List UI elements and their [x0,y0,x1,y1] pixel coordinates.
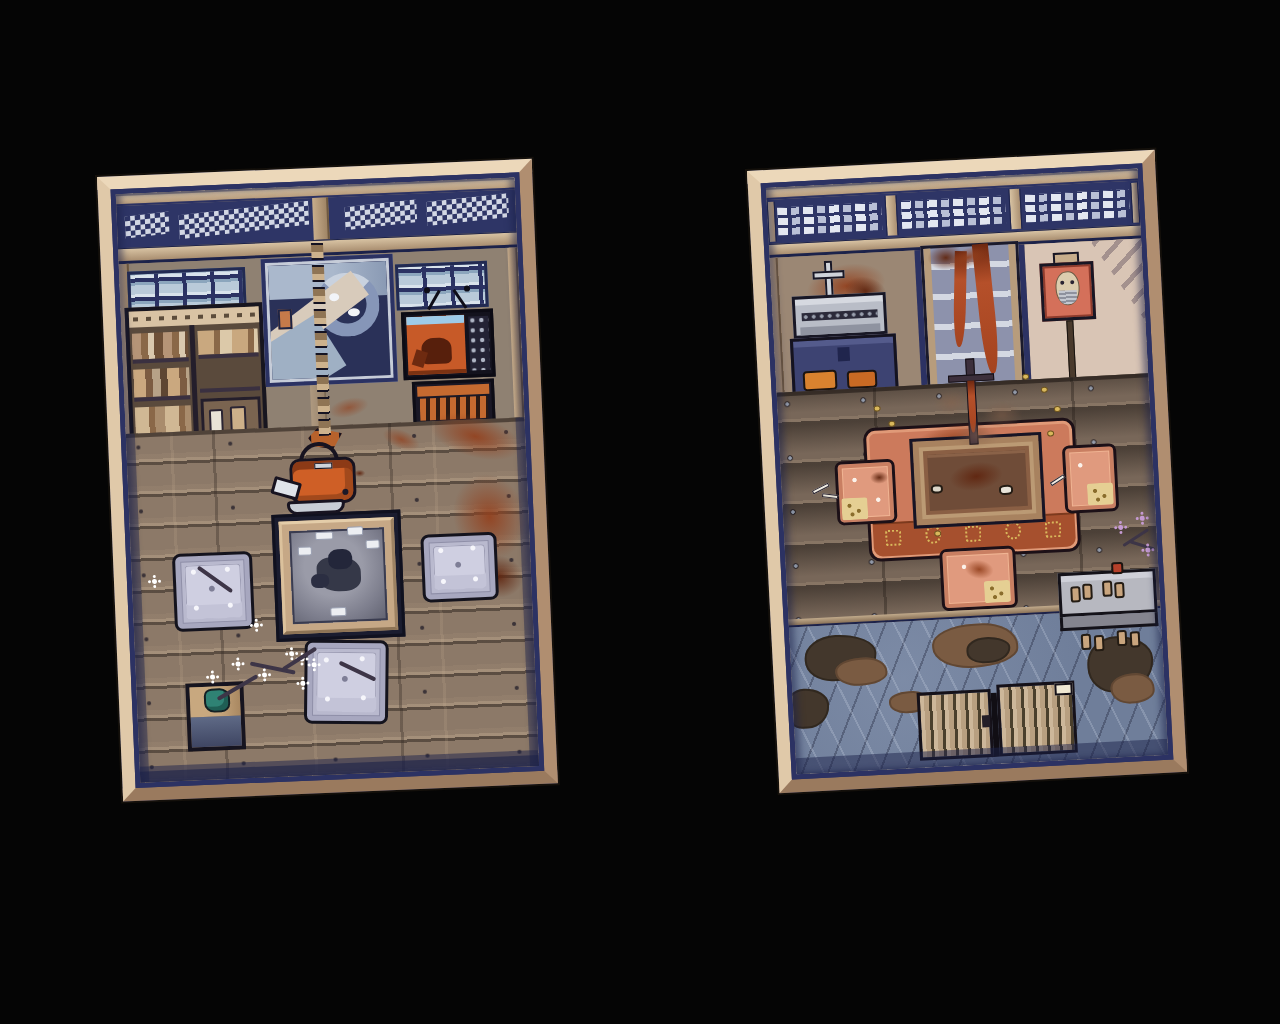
lattice-checker [125,211,170,238]
cross-arm [812,270,844,280]
white-blossom [300,681,305,686]
tv-screen [406,315,466,375]
purple-blossom [1140,516,1145,521]
tv-figure [421,337,452,364]
wall-post [770,258,785,393]
painting-boat [278,309,293,330]
cushion-patch [984,580,1011,603]
branch-stem [217,674,259,701]
mask-face [1055,271,1081,306]
floor-shadow [140,755,539,783]
bowl [931,484,943,494]
books-row [198,328,259,358]
purple-blossom-branch [1114,513,1158,563]
mask-eye [1070,280,1074,284]
mask-beard [1059,290,1078,305]
wood-floor [126,417,539,782]
charcoal [311,574,330,589]
lattice-checker [179,201,310,240]
rug-motif [1045,521,1062,538]
left-room-trim [111,172,545,788]
stage [0,0,1280,1024]
lattice-checker [426,193,509,226]
hearth-stone [315,531,333,540]
hearth-stone [298,546,312,556]
mud-stain [835,656,888,687]
framed-mask[interactable] [1039,251,1106,384]
painting-art [268,261,391,380]
rug-motif [1005,521,1022,540]
tv-controls [468,316,490,371]
wave-painting[interactable] [261,254,398,387]
mask-eye [1060,281,1064,285]
branch-stem [1129,540,1155,550]
transom-slat [1008,189,1022,230]
television[interactable] [401,309,496,381]
irori-ash [289,527,388,624]
transom-slat [884,195,898,236]
floor-cushion-left[interactable] [172,551,255,632]
cushion-patch [841,497,868,520]
kettle-base [287,499,346,515]
rug-motif [965,525,982,542]
irori-hearth[interactable] [271,510,405,642]
hearth-stone [365,539,379,549]
white-blossom [152,579,157,584]
transom-post [312,197,330,240]
gold-coin [1041,387,1048,393]
white-blossom [210,674,215,679]
bookshelf[interactable] [125,302,269,446]
lattice-checker [344,199,417,230]
gold-coin [873,405,880,411]
cushion-patch [1087,482,1114,505]
mask-frame [1039,261,1096,322]
typewriter[interactable] [792,292,888,339]
cushion-pattern [175,554,252,629]
sandal[interactable] [1082,584,1093,601]
kettle-lid [314,462,332,469]
white-blossom [262,672,267,677]
smoke [954,421,999,449]
sandal[interactable] [1114,582,1125,599]
charcoal [328,549,353,570]
sandal[interactable] [1102,580,1113,597]
floor-cushion-bottom[interactable] [939,545,1018,611]
books-row [199,362,260,392]
right-room-panel [747,150,1187,793]
lattice-glass [901,196,1006,229]
hanging-kettle[interactable] [276,424,376,524]
irori-wood-rim [279,517,399,635]
hearth-stone [347,526,363,536]
purple-blossom [1118,525,1123,530]
sandal[interactable] [1081,634,1092,651]
lattice-glass [1025,189,1130,222]
lattice-glass [777,202,882,235]
desk-contents [847,369,878,389]
floor-cushion-right[interactable] [1062,443,1119,514]
cushion-pattern [423,535,496,600]
floor-cushion-right[interactable] [420,532,499,603]
floor-cushion-left[interactable] [834,459,897,526]
typewriter-keys [802,309,878,321]
sandal[interactable] [1130,631,1141,648]
chopstick [822,493,838,499]
mud-stain [784,687,830,729]
hanging-pole [925,356,1031,471]
floor-shadow [126,434,150,783]
bookshelf-carvings [133,313,255,322]
sandal[interactable] [1117,630,1128,647]
typewriter-carriage [800,323,880,335]
white-blossom [289,651,294,656]
sandal[interactable] [1070,586,1081,603]
bowl [999,485,1014,496]
mask-pole [1066,320,1076,382]
blossom-branch [205,636,328,721]
chopstick [812,483,830,495]
sandal[interactable] [1094,635,1105,652]
desk-drawer [837,347,850,362]
white-blossom [312,662,317,667]
rug-motif [885,529,902,546]
transom-slat [767,202,777,242]
door-handle [982,715,991,727]
right-room-trim [761,163,1174,779]
wall-post [507,247,524,417]
books-row [133,367,190,401]
door-highlight [1054,683,1073,696]
tv-figure [412,349,428,368]
left-room [116,178,539,783]
entrance-door[interactable] [916,681,1078,763]
mud-stain [1110,672,1156,704]
wood-floor [777,373,1161,627]
shoe-step[interactable] [1057,568,1161,657]
transom-slat [1130,183,1140,223]
books-row [132,331,189,363]
right-room [766,169,1168,775]
purple-blossom [1145,547,1150,552]
gold-coin [1054,406,1061,412]
left-room-panel [97,159,558,802]
white-blossom [235,661,240,666]
apple[interactable] [1111,562,1124,575]
desk-contents [803,370,838,392]
hearth-stone [330,607,346,617]
white-blossom [254,623,259,628]
blood-drip [351,468,367,479]
kettle-body [289,456,357,505]
smoke [933,389,970,417]
tv-stand-top [417,384,489,397]
branch-stem [281,647,317,672]
